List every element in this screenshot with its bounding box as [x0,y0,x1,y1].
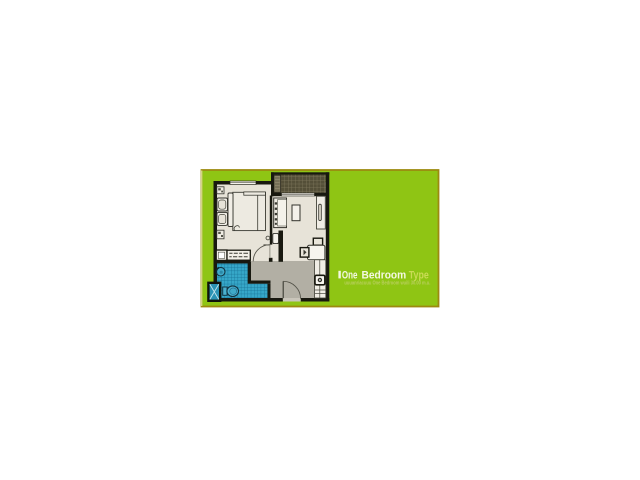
svg-text:uuuanriacuuu One Bedroom wuili: uuuanriacuuu One Bedroom wuili 30.00 m.u… [344,281,430,287]
